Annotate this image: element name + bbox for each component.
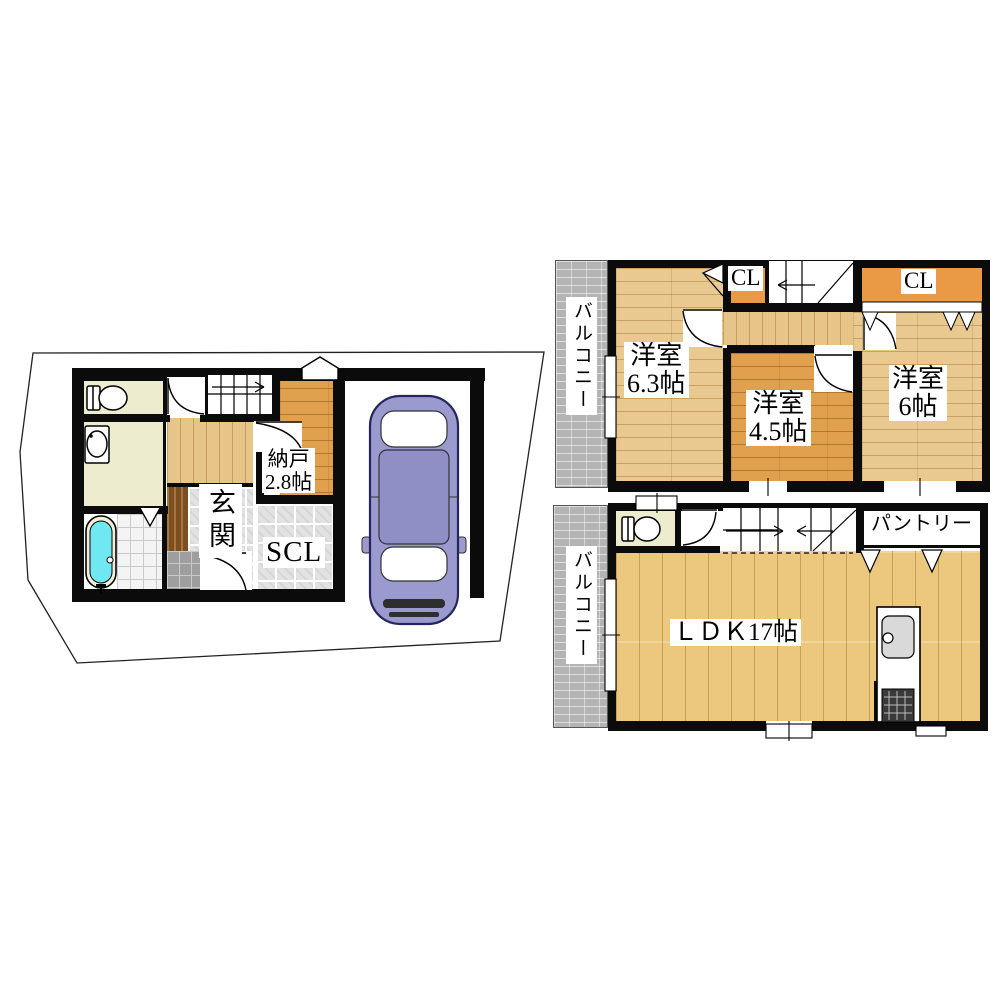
hallway-bedroom-floor bbox=[723, 308, 853, 345]
label-line: ＬＤＫ17帖 bbox=[670, 619, 801, 646]
wall-segment bbox=[608, 503, 616, 579]
label-pantry: パントリー bbox=[868, 514, 975, 536]
wall-segment bbox=[470, 368, 484, 598]
label-entrance: 玄関 bbox=[199, 484, 242, 558]
wall-segment bbox=[723, 303, 862, 312]
label-line: CL bbox=[728, 266, 763, 291]
label-line: 6帖 bbox=[889, 393, 947, 421]
wall-segment bbox=[608, 481, 749, 492]
stairs-bedroom-floor bbox=[769, 261, 853, 303]
wall-segment bbox=[853, 351, 862, 481]
label-line: 洋室 bbox=[889, 365, 947, 393]
label-balcony-bedroom-floor: バルコニー bbox=[566, 297, 597, 415]
label-bedroom-45: 洋室 4.5帖 bbox=[746, 390, 811, 446]
label-bedroom-6: 洋室 6帖 bbox=[889, 365, 947, 421]
wall-segment bbox=[72, 368, 84, 602]
wall-segment bbox=[333, 368, 345, 602]
label-storage-room: 納戸 2.8帖 bbox=[262, 448, 315, 493]
hall-door-1f bbox=[167, 377, 205, 415]
stairs-ldk-floor bbox=[723, 508, 856, 551]
wall-segment bbox=[163, 420, 166, 508]
hall-door-ldk bbox=[682, 509, 718, 546]
floorplan-canvas: 納戸 2.8帖 玄関 SCL バルコニー CL CL 洋室 6.3帖 洋室 4.… bbox=[0, 0, 1000, 1000]
wall-segment bbox=[853, 261, 862, 311]
label-line: 6.3帖 bbox=[624, 370, 689, 398]
label-bedroom-63: 洋室 6.3帖 bbox=[624, 342, 689, 398]
wall-segment bbox=[613, 546, 720, 553]
wall-segment bbox=[862, 545, 980, 548]
wall-segment bbox=[608, 721, 766, 731]
wall-segment bbox=[787, 481, 884, 492]
bathroom-floor-1f bbox=[117, 514, 162, 591]
wall-segment bbox=[84, 414, 170, 422]
wall-segment bbox=[72, 589, 345, 602]
label-line: CL bbox=[901, 269, 936, 294]
wall-segment bbox=[874, 681, 882, 729]
label-line: パントリー bbox=[868, 514, 975, 536]
wall-segment bbox=[812, 721, 988, 731]
porch-tiles-1f bbox=[167, 551, 200, 589]
hall-floor-1f bbox=[167, 418, 253, 483]
wall-segment bbox=[608, 260, 616, 356]
wall-segment bbox=[162, 506, 167, 591]
label-line: 4.5帖 bbox=[746, 418, 811, 446]
wall-segment bbox=[256, 495, 340, 504]
label-line: 洋室 bbox=[624, 342, 689, 370]
label-line: 納戸 bbox=[262, 448, 315, 471]
label-closet-small: CL bbox=[728, 266, 763, 291]
label-closet-right: CL bbox=[901, 269, 936, 294]
doorway-threshold bbox=[853, 312, 862, 351]
wall-segment bbox=[675, 511, 681, 549]
wall-segment bbox=[982, 260, 990, 492]
stairs-1f bbox=[208, 375, 272, 414]
wall-segment bbox=[980, 503, 988, 731]
washroom-1f bbox=[84, 422, 163, 506]
label-line: 2.8帖 bbox=[262, 471, 315, 494]
label-line: 洋室 bbox=[746, 390, 811, 418]
label-shoe-closet: SCL bbox=[263, 537, 325, 568]
car-icon bbox=[362, 396, 466, 624]
bedroom-6-door bbox=[863, 313, 896, 350]
wall-segment bbox=[84, 506, 168, 514]
toilet-room-ldk bbox=[616, 511, 675, 548]
toilet-room-1f bbox=[84, 381, 167, 414]
bathtub-zone-1f bbox=[84, 514, 117, 591]
bedroom-45-door bbox=[814, 346, 853, 392]
label-line: SCL bbox=[263, 537, 325, 568]
wall-segment bbox=[727, 345, 815, 353]
bedroom-63-door bbox=[683, 309, 722, 347]
wall-segment bbox=[723, 348, 731, 481]
entrance-step-edge bbox=[167, 487, 188, 551]
label-ldk: ＬＤＫ17帖 bbox=[670, 619, 801, 646]
label-balcony-ldk-floor: バルコニー bbox=[566, 546, 597, 664]
